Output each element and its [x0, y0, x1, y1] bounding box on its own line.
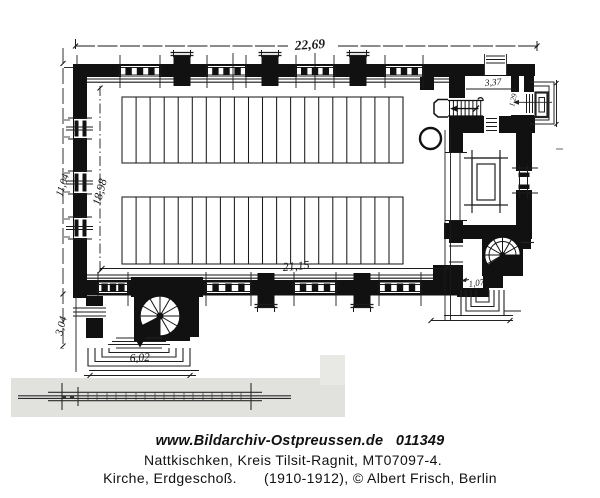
svg-text:3,37: 3,37 — [483, 77, 503, 89]
svg-text:6,02: 6,02 — [129, 352, 150, 365]
svg-text:18,98: 18,98 — [89, 177, 110, 207]
svg-text:21,15: 21,15 — [282, 258, 310, 274]
svg-text:22,69: 22,69 — [293, 36, 326, 53]
svg-text:1,29: 1,29 — [507, 92, 519, 107]
svg-text:1,07: 1,07 — [468, 277, 485, 289]
svg-text:3,04: 3,04 — [53, 315, 70, 338]
